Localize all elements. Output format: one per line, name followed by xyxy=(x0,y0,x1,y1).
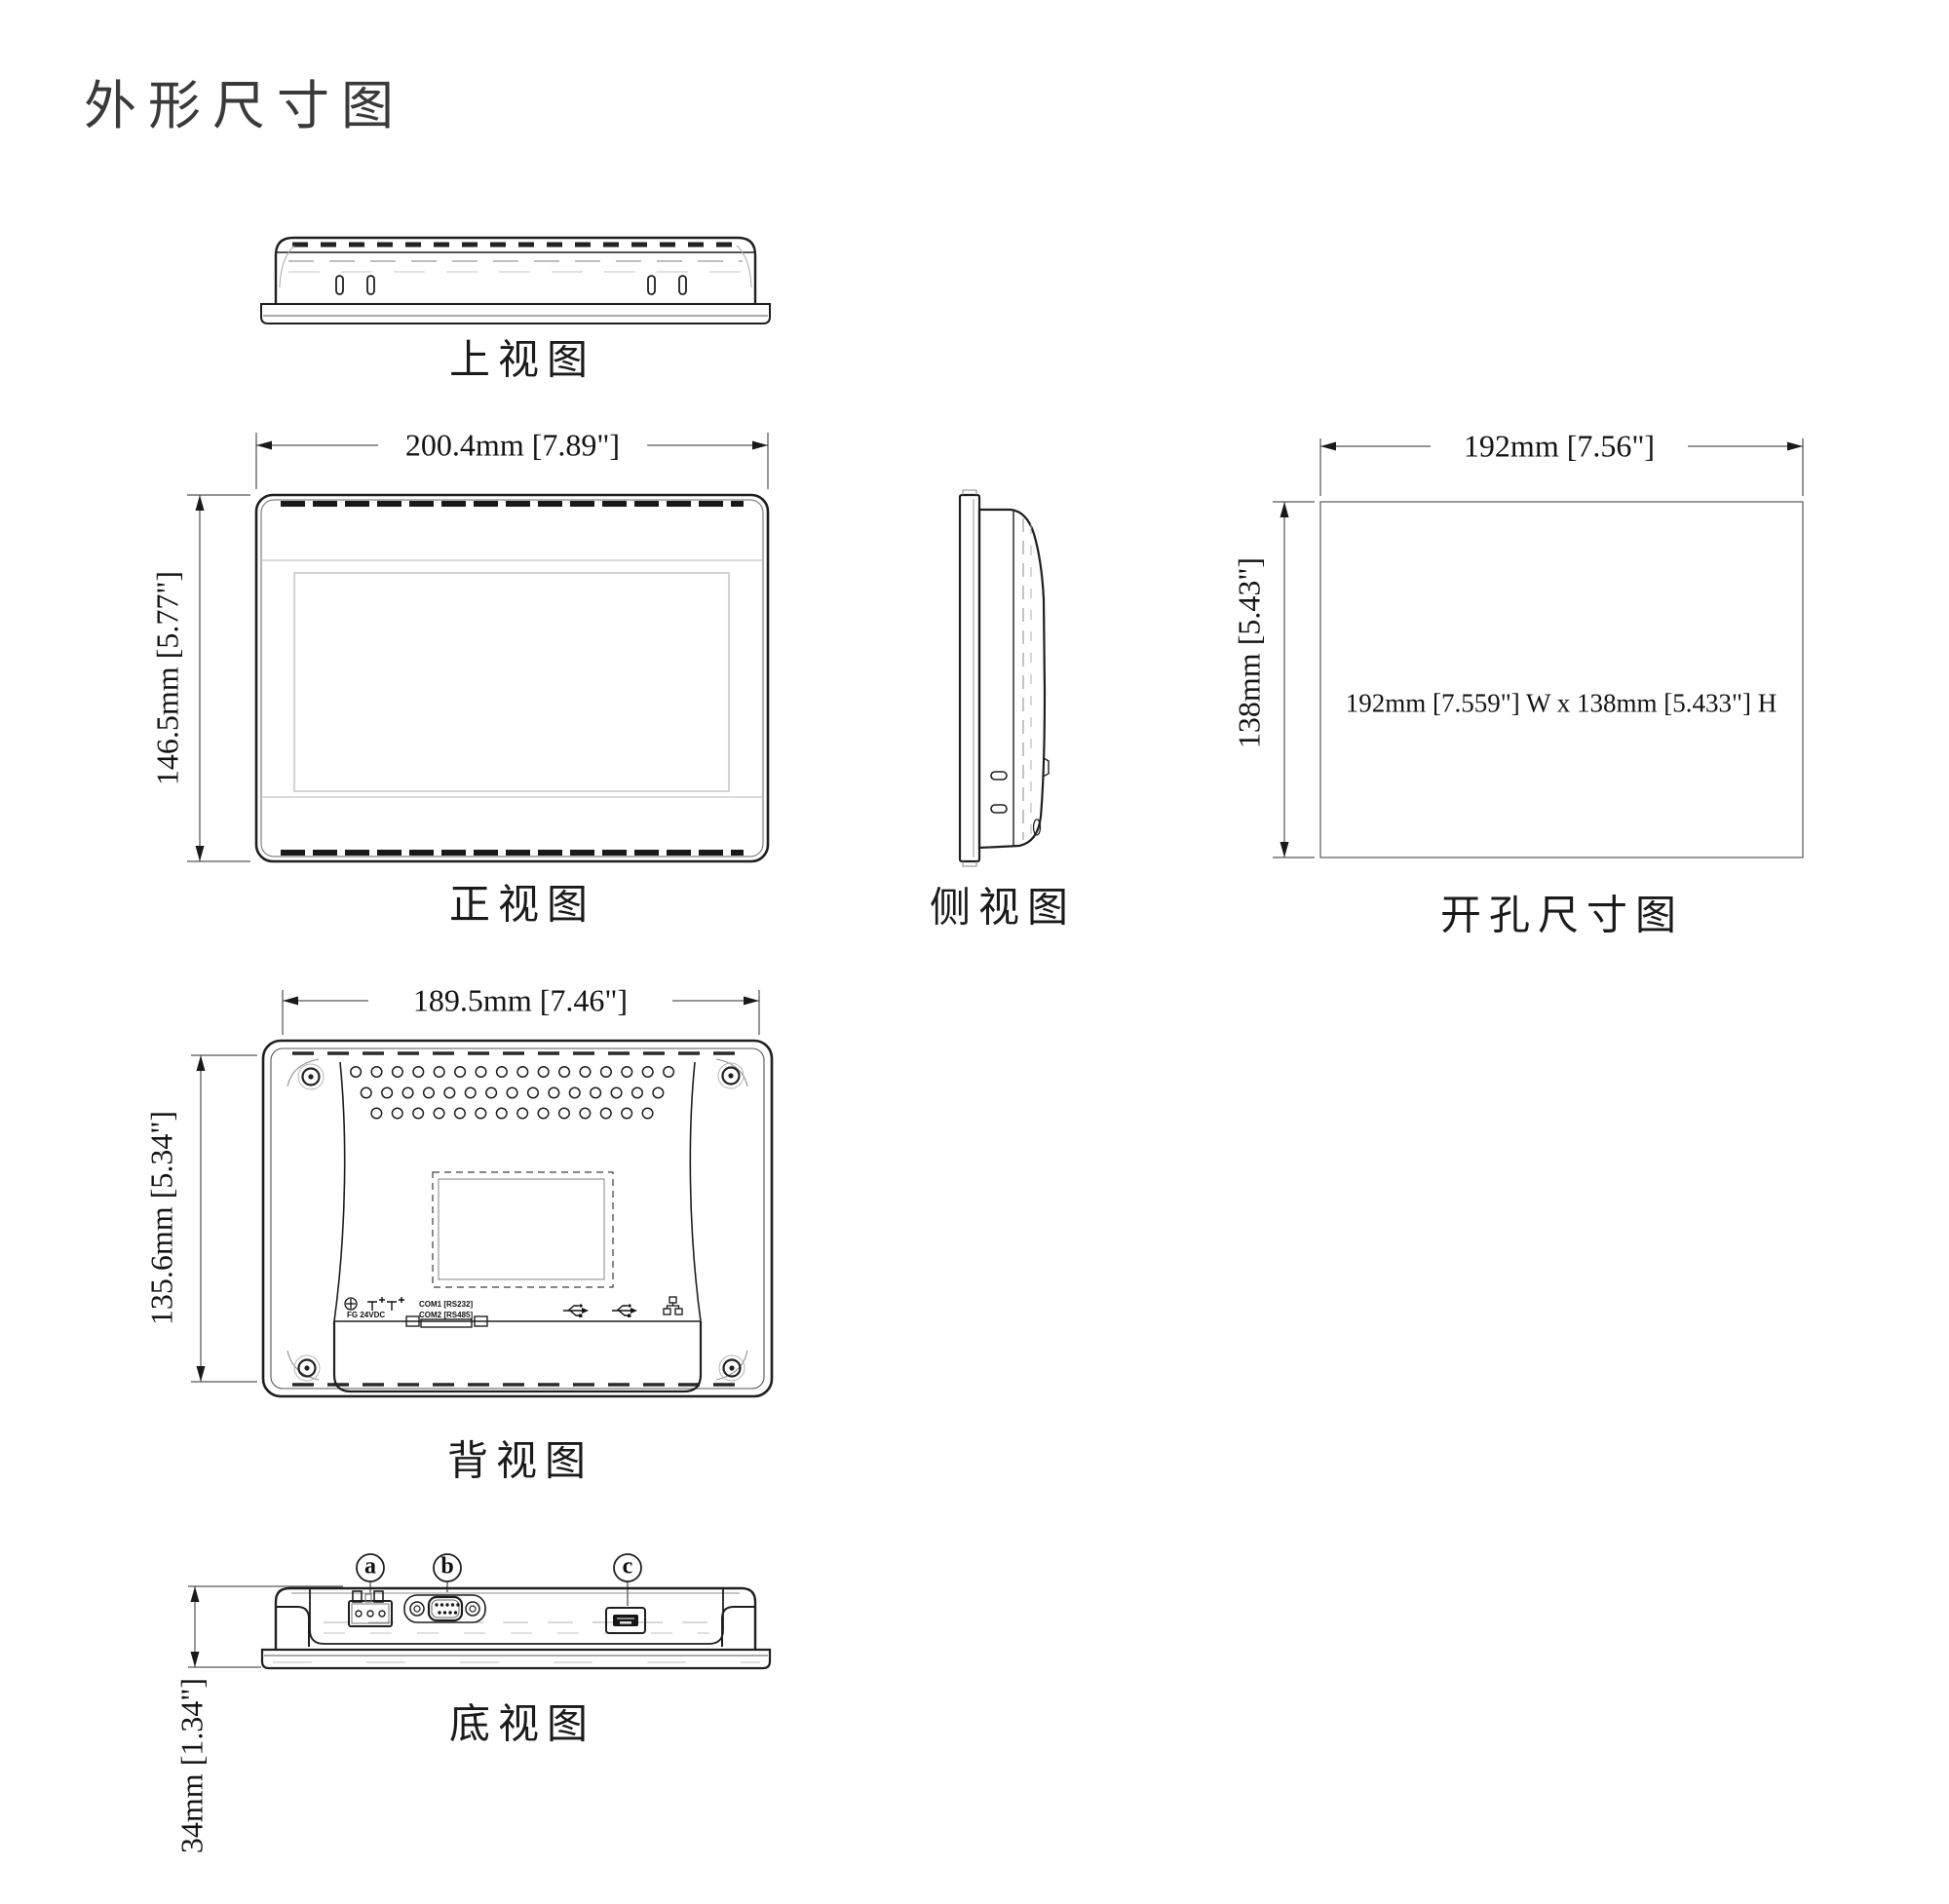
usb-icon-2 xyxy=(612,1304,637,1317)
top-view-vent-slots xyxy=(336,276,686,294)
callout-a-label: a xyxy=(364,1554,376,1580)
side-view-label: 侧视图 xyxy=(930,875,1076,934)
screen-area-outline xyxy=(294,573,729,791)
top-view-drawing xyxy=(261,238,770,324)
vent-holes xyxy=(356,1072,688,1114)
back-view-drawing xyxy=(263,1041,772,1396)
power-terminal-connector xyxy=(349,1591,392,1626)
front-width-dimension: 200.4mm [7.89"] xyxy=(398,428,628,464)
usb-icon-1 xyxy=(563,1304,589,1317)
ground-icon xyxy=(345,1298,357,1310)
callout-circles xyxy=(357,1554,641,1606)
cutout-height-dimension: 138mm [5.43"] xyxy=(1232,557,1268,748)
front-height-dimension: 146.5mm [5.77"] xyxy=(150,571,186,785)
front-view-label: 正视图 xyxy=(449,872,595,932)
fg-24vdc-marking: FG 24VDC xyxy=(347,1311,385,1319)
cutout-note: 192mm [7.559"] W x 138mm [5.433"] H xyxy=(1346,689,1777,719)
top-view-label: 上视图 xyxy=(449,327,595,387)
back-width-dimension: 189.5mm [7.46"] xyxy=(405,983,635,1019)
vesa-mount-outline xyxy=(433,1172,613,1287)
bottom-height-dimension: 34mm [1.34"] xyxy=(174,1678,210,1853)
bottom-view-label: 底视图 xyxy=(449,1692,595,1751)
usb-mini-connector xyxy=(606,1608,645,1633)
com1-marking: COM1 [RS232] xyxy=(419,1300,473,1309)
technical-drawing-svg xyxy=(0,0,1949,1904)
com2-marking: COM2 [RS485] xyxy=(419,1311,473,1319)
cutout-view-drawing xyxy=(1320,502,1803,857)
power-terminal-icon xyxy=(367,1297,404,1311)
cutout-rectangle xyxy=(1320,502,1803,857)
back-view-label: 背视图 xyxy=(447,1428,593,1488)
page-title: 外形尺寸图 xyxy=(84,62,405,139)
bottom-view-drawing xyxy=(262,1554,770,1668)
cutout-view-label: 开孔尺寸图 xyxy=(1440,883,1684,942)
back-height-dimension: 135.6mm [5.34"] xyxy=(144,1111,180,1325)
db9-serial-connector xyxy=(404,1595,485,1622)
callout-b-label: b xyxy=(440,1554,453,1580)
ethernet-icon xyxy=(664,1297,682,1314)
dimension-drawing-page: 外形尺寸图 上视图 正视图 侧视图 开孔尺寸图 背视图 底视图 200.4mm … xyxy=(0,0,1949,1904)
cutout-width-dimension: 192mm [7.56"] xyxy=(1456,429,1662,465)
front-view-drawing xyxy=(256,495,768,861)
callout-c-label: c xyxy=(623,1554,633,1580)
side-view-drawing xyxy=(960,490,1049,866)
connector-recess-outline xyxy=(334,1321,701,1391)
